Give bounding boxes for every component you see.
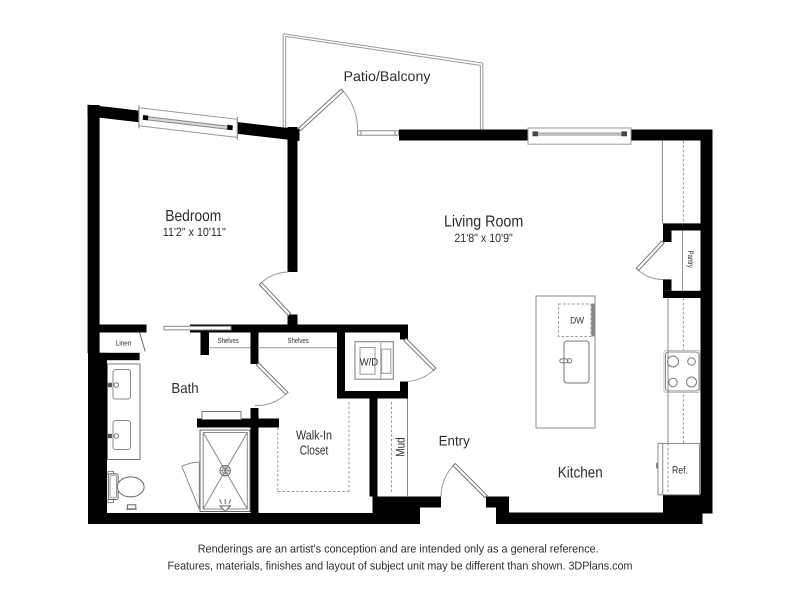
svg-text:Closet: Closet: [300, 442, 329, 457]
svg-text:Pantry: Pantry: [686, 250, 695, 268]
svg-text:Linen: Linen: [116, 339, 132, 348]
svg-text:Shelves: Shelves: [218, 336, 239, 345]
svg-text:Living Room: Living Room: [444, 214, 523, 231]
svg-text:Renderings are an artist's con: Renderings are an artist's conception an…: [198, 544, 599, 556]
svg-text:W/D: W/D: [360, 357, 379, 369]
svg-text:Shelves: Shelves: [288, 336, 309, 345]
svg-text:Mud: Mud: [393, 437, 407, 457]
svg-text:Features, materials, finishes: Features, materials, finishes and layout…: [168, 561, 633, 573]
svg-text:Entry: Entry: [439, 432, 470, 448]
svg-text:Patio/Balcony: Patio/Balcony: [344, 68, 431, 84]
svg-text:Bedroom: Bedroom: [165, 208, 221, 225]
svg-text:Kitchen: Kitchen: [558, 464, 603, 481]
svg-text:DW: DW: [570, 315, 584, 326]
svg-text:Walk-In: Walk-In: [296, 428, 332, 443]
svg-text:Ref.: Ref.: [672, 465, 688, 477]
svg-text:21'8" x 10'9": 21'8" x 10'9": [454, 231, 513, 245]
svg-text:Bath: Bath: [171, 381, 198, 397]
svg-text:11'2" x 10'11": 11'2" x 10'11": [163, 225, 226, 239]
